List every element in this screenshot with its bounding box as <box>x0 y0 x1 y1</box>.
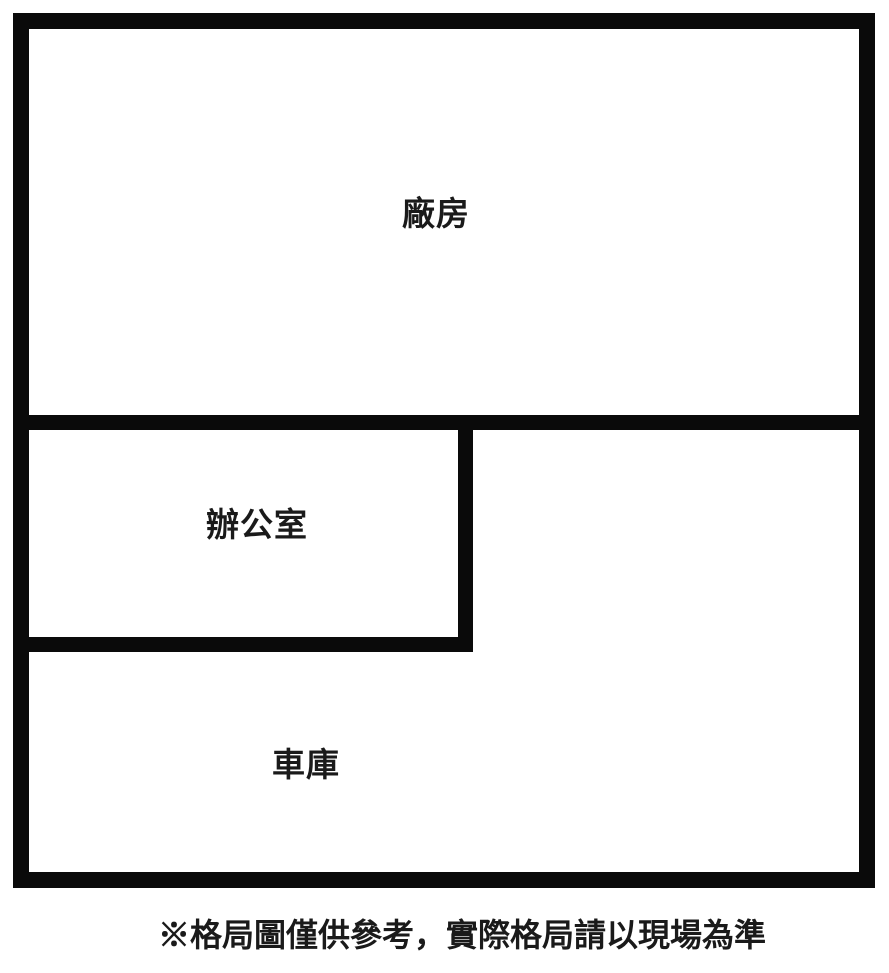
wall-outer-bottom <box>13 872 875 888</box>
wall-factory-bottom <box>13 415 875 430</box>
wall-outer-top <box>13 13 875 29</box>
wall-office-right <box>458 430 473 652</box>
wall-office-bottom <box>13 637 473 652</box>
room-label-factory: 廠房 <box>402 197 470 231</box>
room-label-garage: 車庫 <box>272 748 340 782</box>
disclaimer-text: ※格局圖僅供參考，實際格局請以現場為準 <box>158 917 766 953</box>
wall-outer-left <box>13 13 29 888</box>
floor-plan: 廠房 辦公室 車庫 ※格局圖僅供參考，實際格局請以現場為準 <box>0 0 889 973</box>
wall-outer-right <box>859 13 875 888</box>
room-label-office: 辦公室 <box>206 508 308 542</box>
